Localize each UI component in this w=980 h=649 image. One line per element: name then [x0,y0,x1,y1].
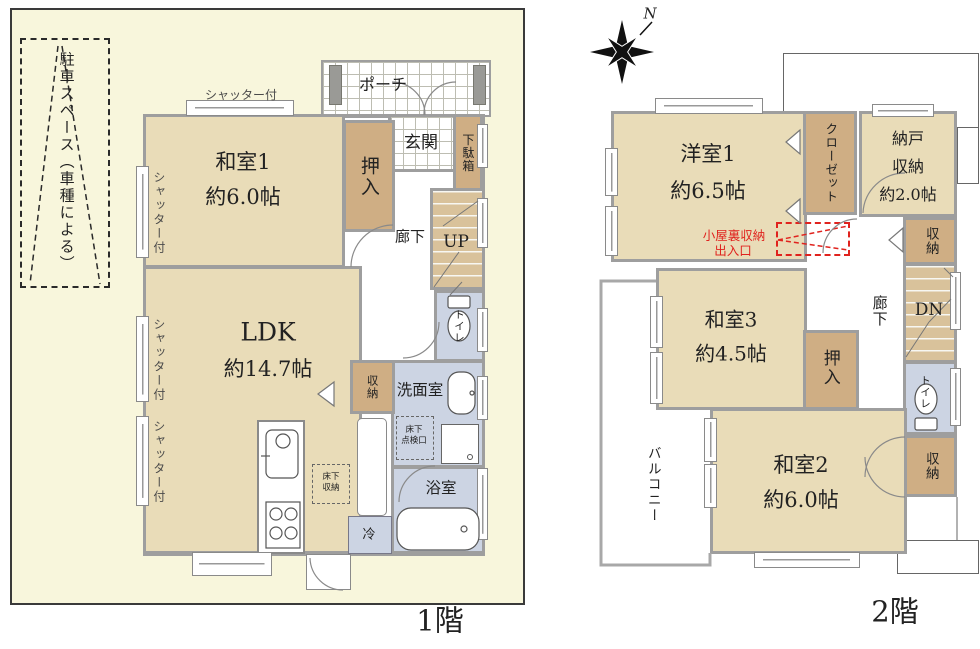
window [704,464,717,508]
window [754,552,860,568]
back-door [306,554,351,590]
senmen-label: 洗面室 [397,382,444,400]
roof-outline [897,540,979,574]
kitchen-counter [257,420,305,554]
washitsu2-name: 和室2 [773,453,828,477]
toilet-2f-label: トイレ [919,375,931,410]
genkan-label: 玄関 [404,134,438,154]
roof-outline [957,127,979,184]
getabako-label: 下駄箱 [460,134,474,173]
yukashita-label-2: 収納 [322,484,339,494]
window [650,352,663,404]
attic-access-label-2: 出入口 [714,244,752,258]
window [136,416,149,506]
window [872,104,934,117]
nando-label-3: 約2.0帖 [879,186,936,204]
shutter-label-left: シャッター付 [151,420,165,504]
porch-label: ポーチ [359,76,407,94]
window [477,124,488,168]
room-ldk [143,266,362,554]
tenkenko-label-1: 床下 [405,426,422,436]
yoshitsu1-name: 洋室1 [680,142,735,166]
window [192,552,272,576]
window [704,418,717,462]
floor2-label: 2階 [871,595,918,628]
yoshitsu1-size: 約6.5帖 [670,179,745,203]
corridor-1f-label: 廊下 [395,228,425,245]
washitsu3-size: 約4.5帖 [695,343,767,366]
shutter-label-top: シャッター付 [205,89,277,103]
porch-pillar [473,65,486,105]
window [477,198,488,248]
attic-access-label-1: 小屋裏収納 [703,229,766,243]
counter-strip [357,418,387,516]
window [477,468,488,540]
ldk-name: LDK [240,319,295,348]
nando-label-2: 収納 [892,158,924,176]
oshiire-1f-label: 押入 [357,156,379,198]
window [605,148,618,196]
floor-plan-page: 駐車スペース（車種による） シャッター付 シャッター付 シャッター付 シャッター… [0,0,980,649]
washing-machine [441,424,479,464]
room-washitsu2 [710,408,907,554]
attic-access-outline [776,222,850,256]
floor1-label: 1階 [416,604,463,637]
porch-pillar [329,65,342,105]
yukashita-label-1: 床下 [322,473,339,483]
bath-label: 浴室 [425,480,456,498]
washitsu1-name: 和室1 [215,150,270,174]
fridge-label: 冷 [362,529,375,544]
ldk-size: 約14.7帖 [224,357,313,381]
window [950,368,961,426]
window [950,272,961,330]
shutter-label-left: シャッター付 [151,318,165,402]
window [136,166,149,258]
window [136,316,149,402]
washitsu2-size: 約6.0帖 [763,488,838,512]
stairs-up-label: UP [443,233,469,253]
oshiire-2f-label: 押入 [819,349,839,387]
compass-n-label: N [643,5,656,22]
compass-icon [590,20,654,84]
room-washitsu3 [656,268,807,410]
window [477,308,488,352]
shutter-label-left: シャッター付 [151,171,165,255]
window [477,376,488,420]
window [605,206,618,256]
window [650,296,663,348]
closet-label: クローゼット [823,123,837,204]
shuno-upper-label: 収納 [922,227,938,256]
window [655,98,763,114]
parking-space-label: 駐車スペース（車種による） [57,52,74,273]
nando-label-1: 納戸 [892,130,924,148]
washitsu1-size: 約6.0帖 [205,185,280,209]
corridor-2f-label: 廊下 [870,295,887,327]
toilet-1f-label: トイレ [453,309,465,344]
balcony-label: バルコニー [644,446,660,524]
stairs-dn-label: DN [915,301,944,321]
shuno-1f-label: 収納 [365,375,378,400]
tenkenko-label-2: 点検口 [401,437,427,447]
washitsu3-name: 和室3 [705,309,758,332]
shuno-lower-label: 収納 [922,452,938,481]
